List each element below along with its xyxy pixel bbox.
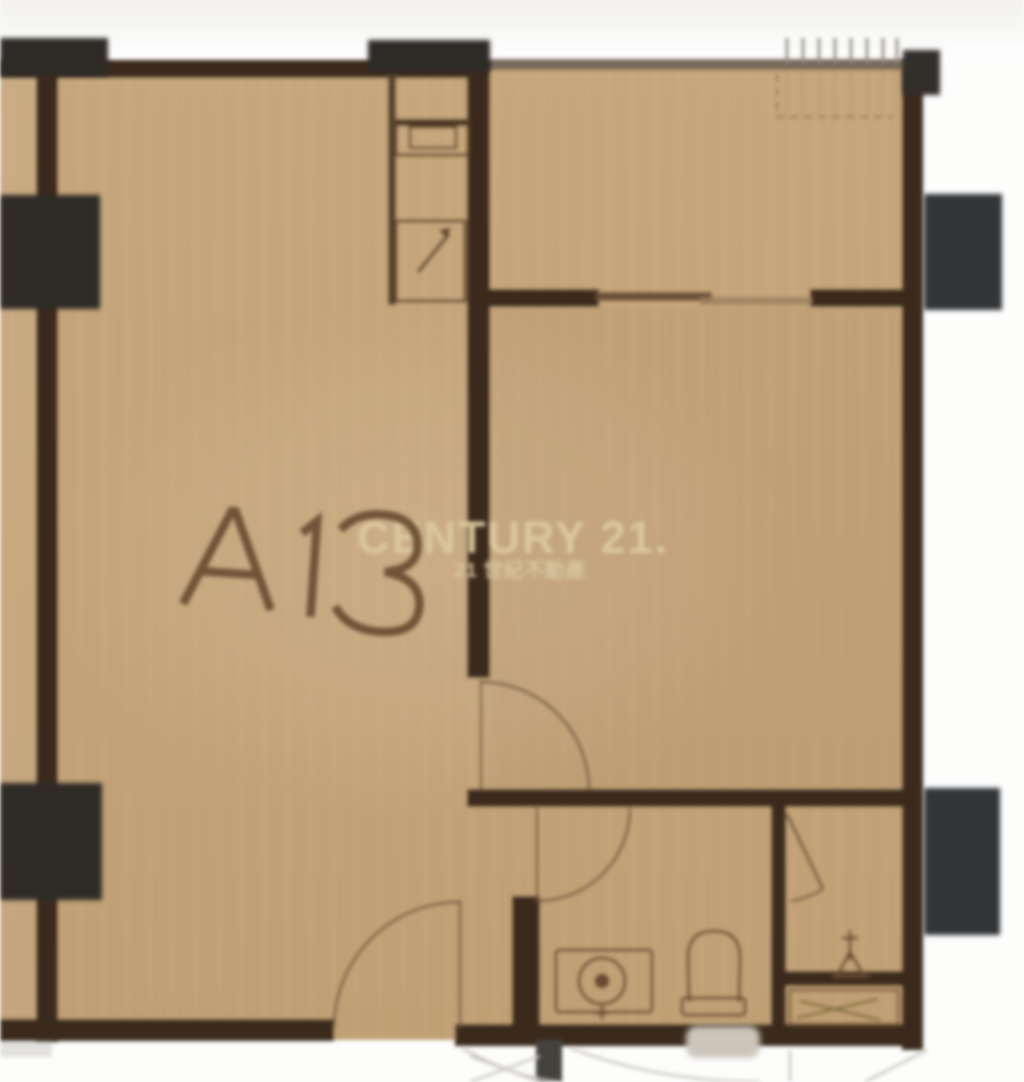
svg-text:21 世紀不動產: 21 世紀不動產	[454, 558, 586, 582]
